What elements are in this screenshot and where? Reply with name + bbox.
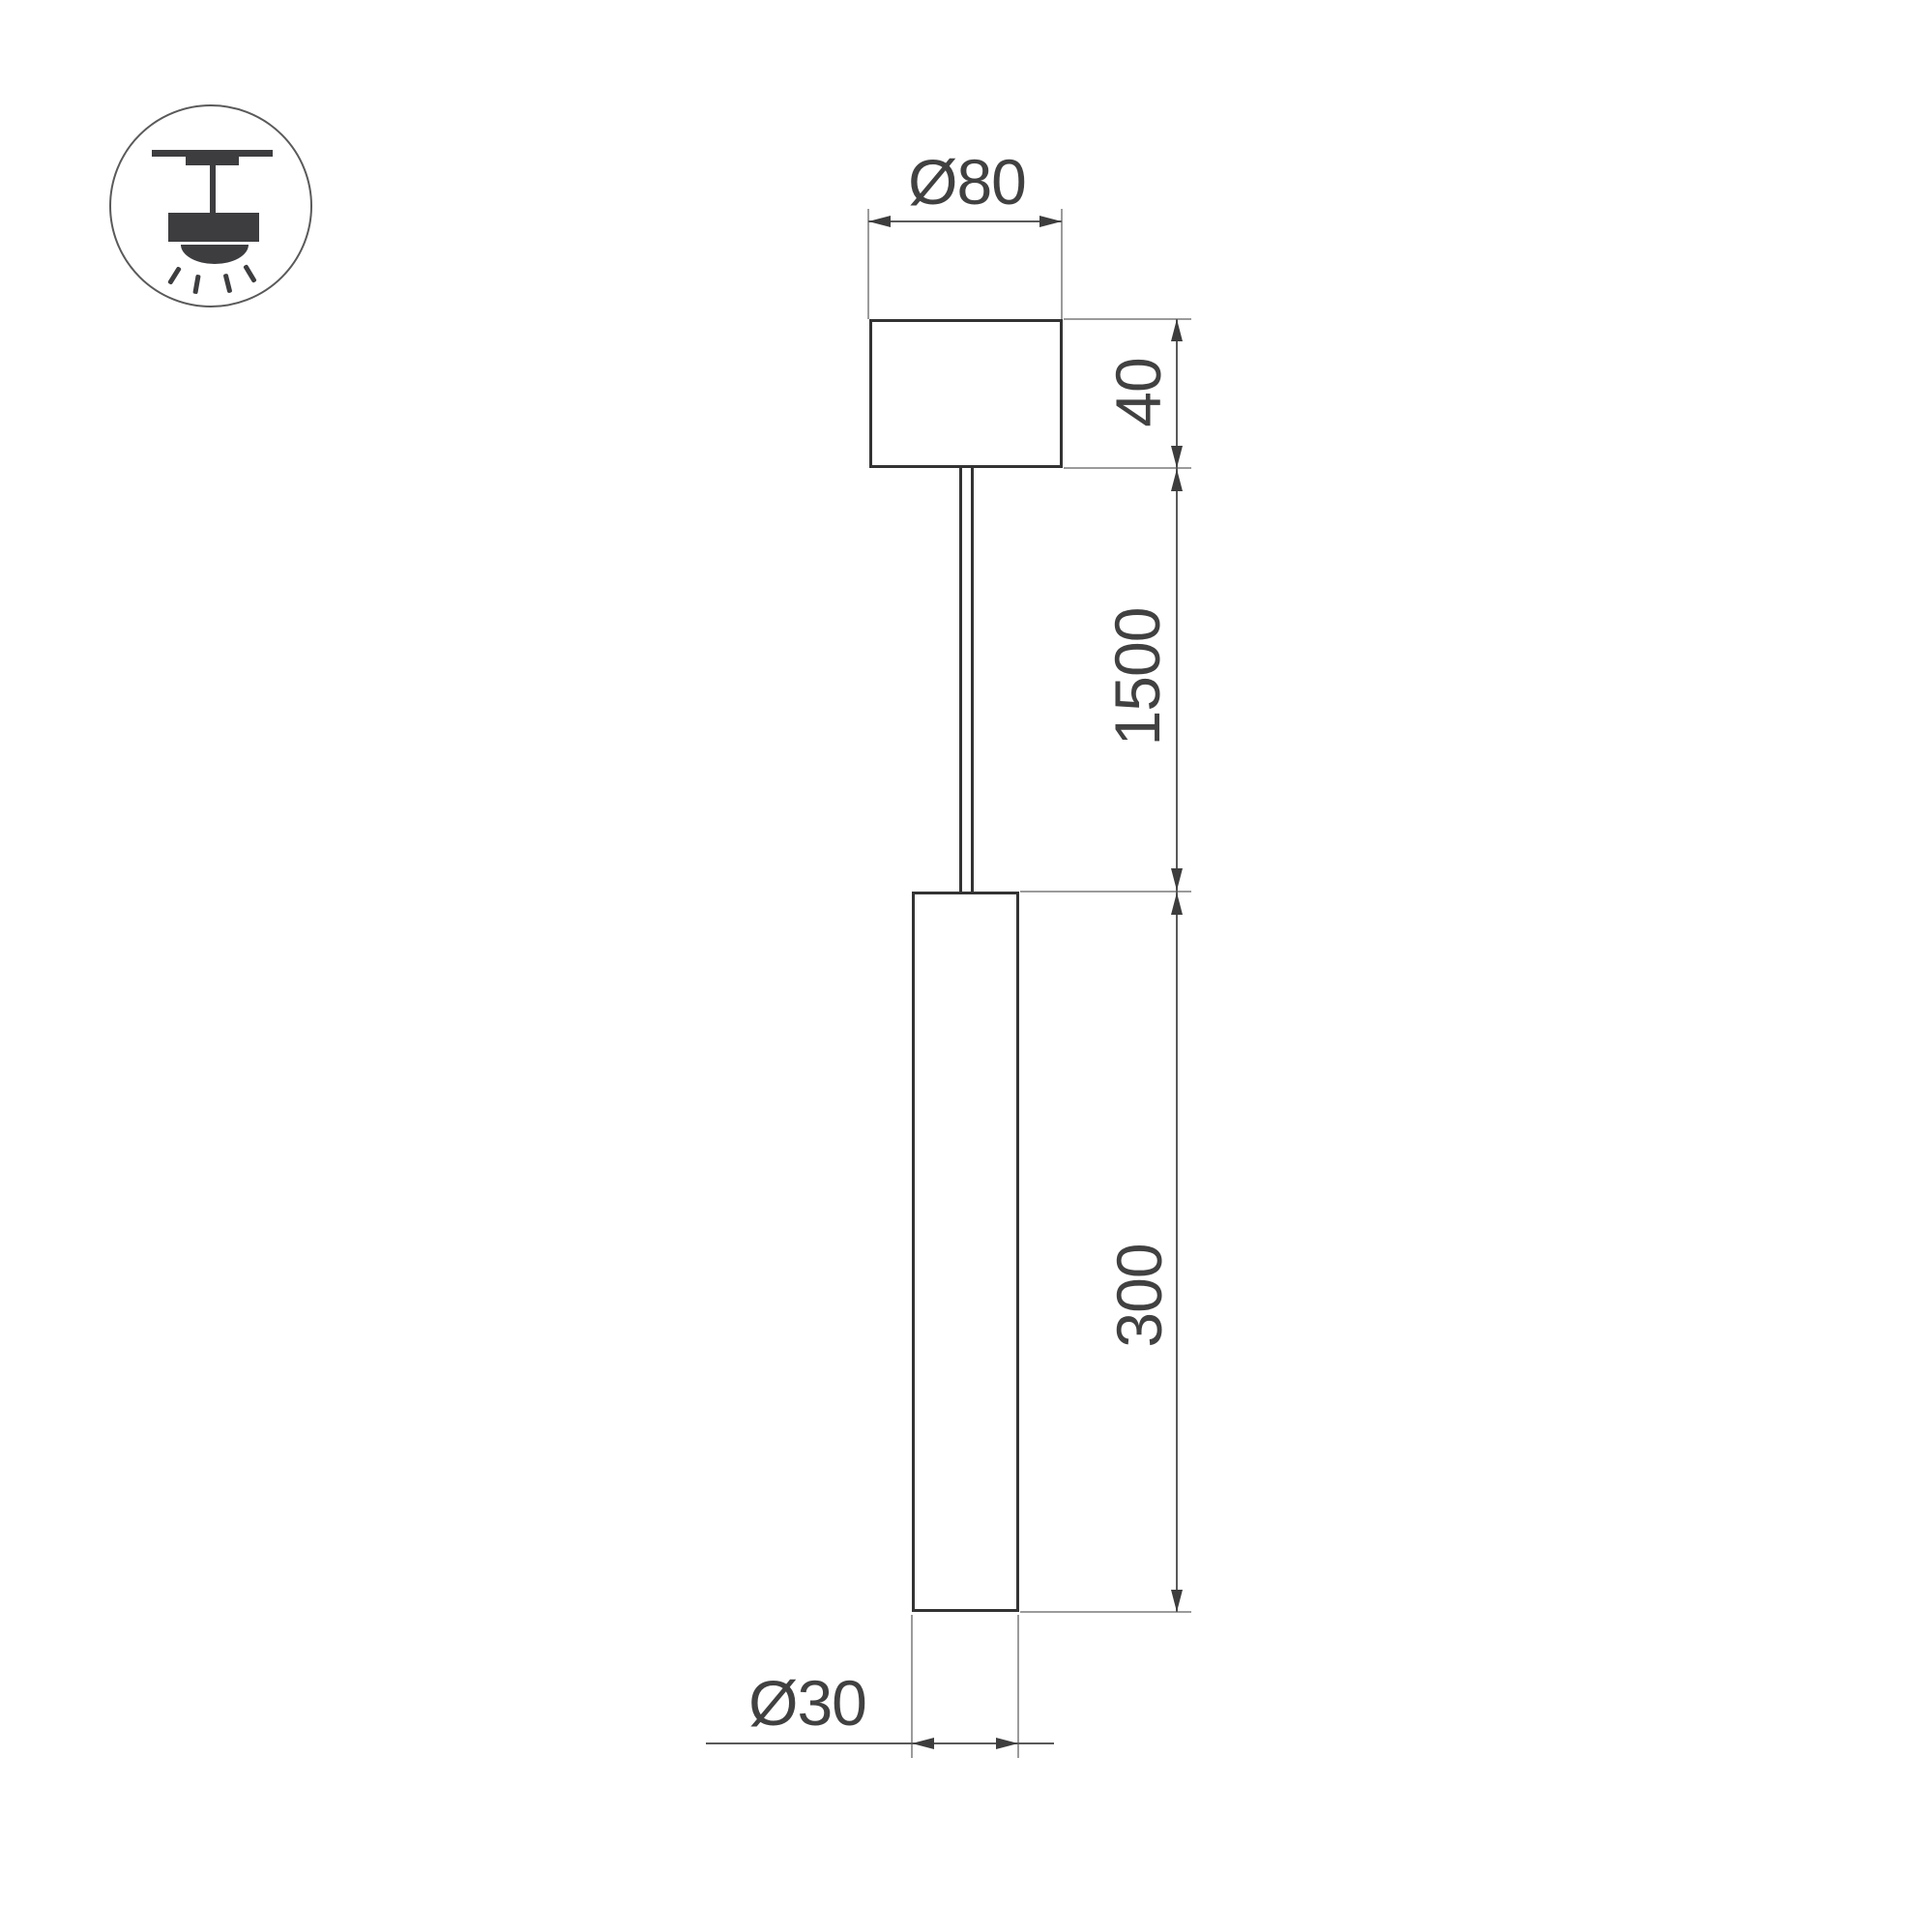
dim-arrow-down-icon [1171, 446, 1183, 468]
light-ray-icon [223, 274, 233, 294]
technical-drawing-canvas: Ø80 40 1500 300 Ø30 [0, 0, 1932, 1932]
ceiling-pendant-mount-icon [109, 104, 312, 307]
dim-label-lamp-diameter: Ø30 [748, 1671, 866, 1735]
dim-arrow-right-icon [1039, 216, 1062, 227]
dimension-line-canopy-diameter [868, 220, 1062, 222]
tube-outline [912, 892, 1019, 1612]
lamp-body [168, 213, 259, 242]
dim-label-lamp-length: 300 [1107, 1244, 1171, 1347]
dim-arrow-down-icon [1171, 1590, 1183, 1612]
light-ray-icon [243, 264, 257, 283]
canopy-outline [869, 319, 1063, 468]
dim-arrow-right-icon [996, 1738, 1018, 1749]
ceiling-line [152, 150, 273, 157]
dim-arrow-up-icon [1171, 469, 1183, 491]
dim-label-suspension-length: 1500 [1105, 608, 1169, 746]
light-dome [181, 245, 249, 264]
dim-label-canopy-height: 40 [1106, 358, 1170, 426]
dim-arrow-left-icon [868, 216, 891, 227]
dim-arrow-left-icon [912, 1738, 934, 1749]
dimension-line-lamp-length [1176, 892, 1178, 1612]
light-ray-icon [167, 266, 182, 285]
dim-label-canopy-diameter: Ø80 [908, 150, 1026, 214]
light-ray-icon [192, 275, 200, 295]
dim-arrow-down-icon [1171, 868, 1183, 891]
extension-line [1020, 1611, 1191, 1613]
dim-arrow-up-icon [1171, 893, 1183, 915]
dim-arrow-up-icon [1171, 319, 1183, 341]
extension-line [1020, 891, 1191, 893]
suspension-rod [210, 165, 216, 215]
extension-line [911, 1615, 913, 1758]
suspension-wire [959, 468, 974, 892]
canopy-bar [186, 157, 239, 165]
extension-line [1017, 1615, 1019, 1758]
dimension-line-suspension-length [1176, 468, 1178, 892]
